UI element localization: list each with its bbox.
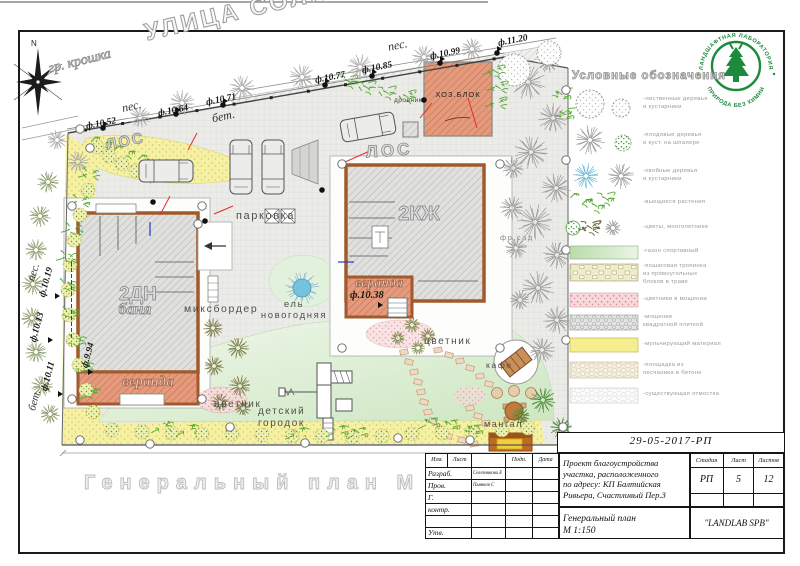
bush [165, 426, 179, 440]
title-block-date-cell: 29-05-2017-РП [557, 432, 785, 453]
bush [102, 149, 116, 163]
deciduous-tree [498, 54, 530, 86]
stepping-stone [456, 358, 465, 364]
tree-starburst [25, 341, 46, 362]
bush [67, 233, 81, 247]
bush [405, 427, 419, 441]
bush [135, 425, 149, 439]
boundary-post [68, 202, 76, 210]
bush [255, 428, 269, 442]
company-name: "LANDLAB SPB" [690, 518, 783, 528]
col-data: Дата [533, 457, 558, 463]
tree-starburst [22, 307, 43, 328]
col-podp: Подп. [506, 457, 532, 463]
bush [73, 208, 87, 222]
deciduous-tree [576, 90, 604, 118]
drawing-sheet: ЛАНДШАФТНАЯ ЛАБОРАТОРИЯ ПРИРОДА БЕЗ ХИМИ… [0, 0, 800, 566]
bathhouse-building [78, 204, 198, 405]
boundary-post [76, 125, 84, 133]
tree-starburst [573, 163, 598, 188]
col-izm: Изм. [427, 457, 447, 463]
sheets-header: Листов [754, 457, 783, 464]
sheet-header: Лист [724, 457, 753, 464]
boundary-post [68, 395, 76, 403]
main-house-building [346, 165, 484, 317]
doc-number: 29-05-2017-РП [558, 435, 784, 447]
shrub-scribble [582, 200, 605, 214]
tree-starburst [608, 164, 634, 189]
bush [435, 426, 449, 440]
project-description: Проект благоустройства участка, располож… [563, 458, 687, 501]
boundary-post [86, 144, 94, 152]
role-control: контр. [428, 505, 450, 514]
name-developer: Селезникова Е [473, 471, 502, 476]
compass-rose [13, 48, 64, 116]
stage-value: РП [690, 474, 723, 485]
bush [521, 421, 535, 435]
boundary-post [198, 395, 206, 403]
deciduous-tree [612, 99, 630, 117]
col-list: Лист [448, 457, 471, 463]
legend-symbols [566, 90, 638, 403]
sheet-value: 5 [724, 474, 753, 485]
tree-starburst [32, 376, 53, 397]
boundary-post [301, 439, 309, 447]
tree-starburst [462, 38, 483, 59]
boundary-post [559, 423, 567, 431]
bush [195, 427, 209, 441]
bush [105, 423, 119, 437]
septic-unit [403, 122, 418, 137]
utility-block-building [424, 62, 492, 136]
boundary-post [198, 202, 206, 210]
role-approved: Утв. [428, 528, 444, 537]
bush [315, 429, 329, 443]
deciduous-tree [537, 41, 561, 65]
boundary-post [226, 423, 234, 431]
fir-tree-icon [723, 47, 749, 82]
boundary-post [496, 160, 504, 168]
bush [495, 423, 509, 437]
stepping-stone [410, 369, 419, 375]
tree-starburst [605, 220, 620, 235]
boundary-post [496, 344, 504, 352]
boundary-post [146, 440, 154, 448]
tree-starburst [22, 274, 43, 295]
drawing-title: Генеральный план М 1:150 [563, 513, 687, 538]
boundary-post [338, 344, 346, 352]
boundary-post [466, 436, 474, 444]
title-block-stamp: Изм. Лист Подп. Дата Разраб. Селезникова… [425, 453, 784, 539]
name-checker: Пьянков С [473, 483, 494, 488]
sheets-value: 12 [754, 474, 783, 485]
tree-starburst [41, 404, 60, 423]
stepping-stone [434, 347, 443, 353]
stepping-stone [424, 409, 433, 415]
tree-starburst [576, 126, 604, 155]
role-g: Г. [428, 493, 434, 502]
tree-starburst [25, 239, 46, 260]
boundary-post [338, 160, 346, 168]
bush [375, 429, 389, 443]
boundary-post [76, 436, 84, 444]
stepping-stone [466, 405, 475, 411]
role-checker: Пров. [428, 481, 446, 490]
boundary-post [562, 336, 570, 344]
tree-starburst [37, 171, 58, 192]
bush [115, 157, 129, 171]
boundary-post [562, 86, 570, 94]
stepping-stone [476, 373, 485, 379]
boundary-post [562, 156, 570, 164]
bush [86, 405, 100, 419]
boundary-post [562, 246, 570, 254]
tree-starburst [30, 206, 51, 227]
role-developer: Разраб. [428, 469, 452, 478]
stepping-stone [482, 420, 491, 426]
boundary-post [194, 220, 202, 228]
stepping-stone [417, 389, 426, 395]
bush [81, 183, 95, 197]
boundary-post [394, 434, 402, 442]
shrub-scribble [597, 192, 615, 206]
shrub-scribble [570, 194, 593, 208]
stage-header: Стадия [690, 457, 723, 464]
company-logo: ЛАНДШАФТНАЯ ЛАБОРАТОРИЯ ПРИРОДА БЕЗ ХИМИ… [697, 33, 775, 109]
bush [66, 333, 80, 347]
stepping-stone [400, 349, 409, 355]
